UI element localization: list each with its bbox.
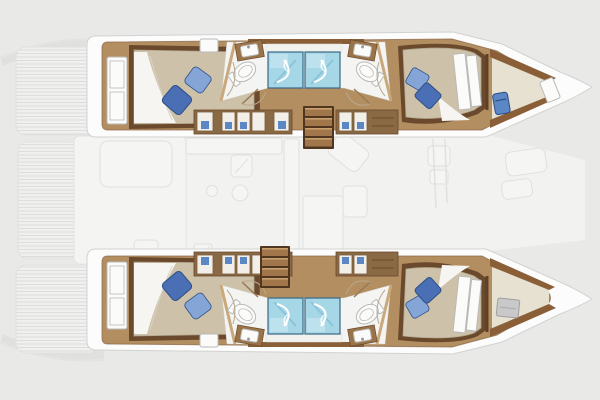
aft-platform xyxy=(18,142,78,258)
salon-passage xyxy=(284,139,299,251)
companionway-steps xyxy=(303,106,334,149)
bow-hatch-gray xyxy=(496,298,520,318)
salon-seat xyxy=(343,186,367,217)
salon-table xyxy=(303,196,343,253)
foredeck-pad xyxy=(501,178,533,200)
galley-sink xyxy=(232,185,248,201)
nav-station xyxy=(428,146,450,166)
cockpit-sofa xyxy=(100,141,172,187)
foredeck-pad xyxy=(505,147,548,176)
companionway-steps xyxy=(260,246,290,288)
floorplan-svg: Catamaran yacht interior layout plan - 4… xyxy=(0,0,600,400)
galley-sink xyxy=(207,186,218,197)
floorplan-stage: Catamaran yacht interior layout plan - 4… xyxy=(0,0,600,400)
forepeak-seat xyxy=(492,92,510,115)
galley-counter xyxy=(186,138,282,154)
